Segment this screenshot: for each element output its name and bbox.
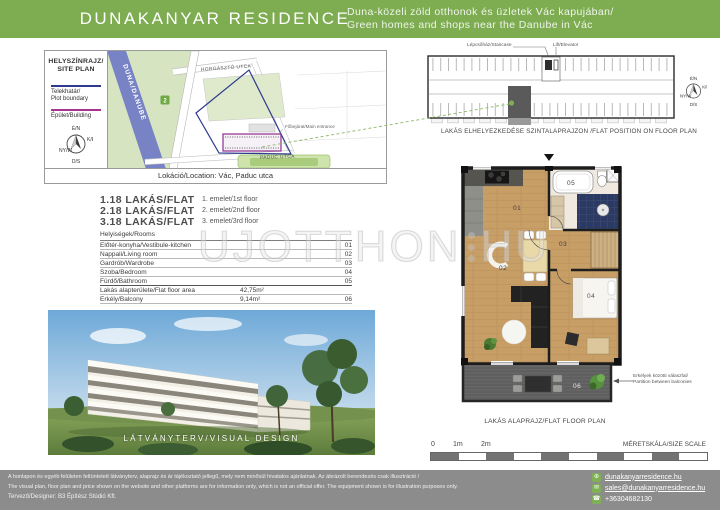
room-row: Előtér-konyha/Vestibule-kitchen01 — [100, 241, 352, 250]
flat-id: 3.18 LAKÁS/FLAT — [100, 216, 194, 228]
designer-credit: Tervező/Designer: B3 Építész Stúdió Kft. — [8, 494, 583, 501]
compass-icon-small: É/N K/E NY/W D/S — [680, 74, 707, 108]
svg-text:É/N: É/N — [72, 125, 81, 132]
wardrobe-cabinet — [591, 232, 619, 268]
sofa — [531, 286, 549, 348]
flat-row: 3.18 LAKÁS/FLAT 3. emelet/3rd floor — [100, 216, 380, 227]
compass-icon: É/N K/E NY/W D/S — [59, 123, 93, 165]
svg-text:D/S: D/S — [72, 159, 81, 165]
plot-boundary-swatch — [51, 85, 101, 87]
room-label-06: 06 — [573, 383, 581, 390]
elevator-block — [554, 60, 558, 70]
room-label-03: 03 — [559, 241, 567, 248]
phone-row: ☎ +36304682130 — [592, 494, 652, 504]
room-label-04: 04 — [587, 293, 595, 300]
room-label-02: 02 — [499, 265, 507, 272]
tagline-en: Green homes and shops near the Danube in… — [347, 19, 717, 32]
rooms-header: Helyiségek/Rooms — [100, 231, 352, 241]
scale-label: MÉRETSKÁLA/SIZE SCALE — [556, 441, 706, 448]
tagline-hu: Duna-közeli zöld otthonok és üzletek Vác… — [347, 6, 717, 19]
desk — [587, 338, 609, 354]
flat-area-row: Lakás alapterülete/Flat floor area42,75m… — [100, 286, 352, 295]
svg-text:NY/W: NY/W — [59, 148, 72, 154]
svg-text:NY/W: NY/W — [680, 93, 692, 98]
partition-arrow — [613, 377, 633, 385]
room-row: Gardrób/Wardrobe03 — [100, 259, 352, 268]
flat-list: 1.18 LAKÁS/FLAT 1. emelet/1st floor 2.18… — [100, 194, 385, 228]
location-bar: Lokáció/Location: Vác, Paduc utca — [45, 168, 386, 183]
site-plan-title: HELYSZÍNRAJZ/SITE PLAN — [45, 58, 107, 74]
svg-text:É/N: É/N — [690, 76, 697, 81]
room-label-05: 05 — [567, 180, 575, 187]
globe-icon: ⊕ — [592, 473, 601, 482]
highlighted-flat-balcony — [508, 118, 531, 125]
flat-floor-plan: 01 02 03 04 05 06 — [461, 166, 629, 406]
flat-floor: 2. emelet/2nd floor — [202, 207, 260, 214]
balcony-table — [525, 376, 551, 392]
footer-bar: A honlapon és egyéb felületen feltüntete… — [0, 470, 720, 510]
floor-plan-caption: LAKÁS ALAPRAJZ/FLAT FLOOR PLAN — [430, 418, 660, 425]
position-plan-caption: LAKÁS ELHELYEZKEDÉSE SZINTALAPRAJZON /FL… — [424, 128, 714, 135]
site-plan-legend: HELYSZÍNRAJZ/SITE PLAN Telekhatár/Plot b… — [45, 51, 108, 169]
photo-caption: LÁTVÁNYTERV/VISUAL DESIGN — [48, 434, 375, 443]
svg-text:D/S: D/S — [690, 102, 697, 107]
mail-icon: ✉ — [592, 484, 601, 493]
dining-table — [523, 240, 547, 272]
street-bottom-label: PADUC UTCA — [260, 154, 295, 161]
rooms-table: Helyiségek/Rooms Előtér-konyha/Vestibule… — [100, 231, 352, 304]
svg-text:K/E: K/E — [87, 137, 93, 143]
scale-tick-2m: 2m — [481, 441, 491, 448]
scale-tick-0: 0 — [431, 441, 435, 448]
balcony-area-row: Erkély/Balcony9,14m²06 — [100, 295, 352, 304]
flat-floor: 3. emelet/3rd floor — [202, 218, 258, 225]
email-link[interactable]: sales@dunakanyarresidence.hu — [605, 485, 705, 492]
bath-cabinet — [551, 196, 564, 228]
building-swatch — [51, 109, 101, 111]
flat-floor: 1. emelet/1st floor — [202, 196, 258, 203]
visual-design-photo: LÁTVÁNYTERV/VISUAL DESIGN — [48, 310, 375, 455]
floor-position-plan — [424, 42, 714, 142]
site-plan-map: 2 HORGÁSZTÓ UTCA PADUC UTCA Főbejárat/Ma… — [107, 51, 386, 169]
parking-strip — [249, 124, 275, 132]
header-tagline: Duna-közeli zöld otthonok és üzletek Vác… — [347, 6, 717, 32]
website-link[interactable]: dunakanyarresidence.hu — [605, 474, 682, 481]
header-bar: DUNAKANYAR RESIDENCE Duna-közeli zöld ot… — [0, 0, 720, 38]
legend-plot-label: Telekhatár/Plot boundary — [51, 89, 88, 103]
room-label-01: 01 — [513, 205, 521, 212]
svg-text:K/E: K/E — [702, 85, 707, 90]
legend-building-label: Épület/Building — [51, 113, 91, 120]
email-row: ✉ sales@dunakanyarresidence.hu — [592, 483, 705, 493]
main-entrance-label: Főbejárat/Main entrance — [285, 124, 335, 129]
disclaimer-en: The visual plan, floor plan and price sh… — [8, 484, 583, 491]
phone-icon: ☎ — [592, 495, 601, 504]
desk-chair — [565, 332, 579, 346]
partition-note: Erkélyek közötti válaszfal/ Partition be… — [633, 374, 713, 386]
stove — [485, 171, 509, 184]
staircase-block — [545, 60, 552, 70]
scale-tick-1m: 1m — [453, 441, 463, 448]
flat-row: 1.18 LAKÁS/FLAT 1. emelet/1st floor — [100, 194, 380, 205]
site-plan-panel: 2 HORGÁSZTÓ UTCA PADUC UTCA Főbejárat/Ma… — [44, 50, 387, 184]
disclaimer-hu: A honlapon és egyéb felületen feltüntete… — [8, 474, 583, 481]
phone-link[interactable]: +36304682130 — [605, 496, 652, 503]
flat-marker-dot — [509, 100, 514, 105]
datasheet-page: DUNAKANYAR RESIDENCE Duna-közeli zöld ot… — [0, 0, 720, 510]
room-row: Fürdő/Bathroom05 — [100, 277, 352, 286]
flat-pointer-triangle — [544, 154, 554, 161]
building-footprint — [223, 134, 281, 151]
flat-row: 2.18 LAKÁS/FLAT 2. emelet/2nd floor — [100, 205, 380, 216]
room-row: Szoba/Bedroom04 — [100, 268, 352, 277]
scale-bar — [430, 452, 708, 461]
room-row: Nappali/Living room02 — [100, 250, 352, 259]
round-rug — [502, 320, 526, 344]
website-row: ⊕ dunakanyarresidence.hu — [592, 472, 682, 482]
